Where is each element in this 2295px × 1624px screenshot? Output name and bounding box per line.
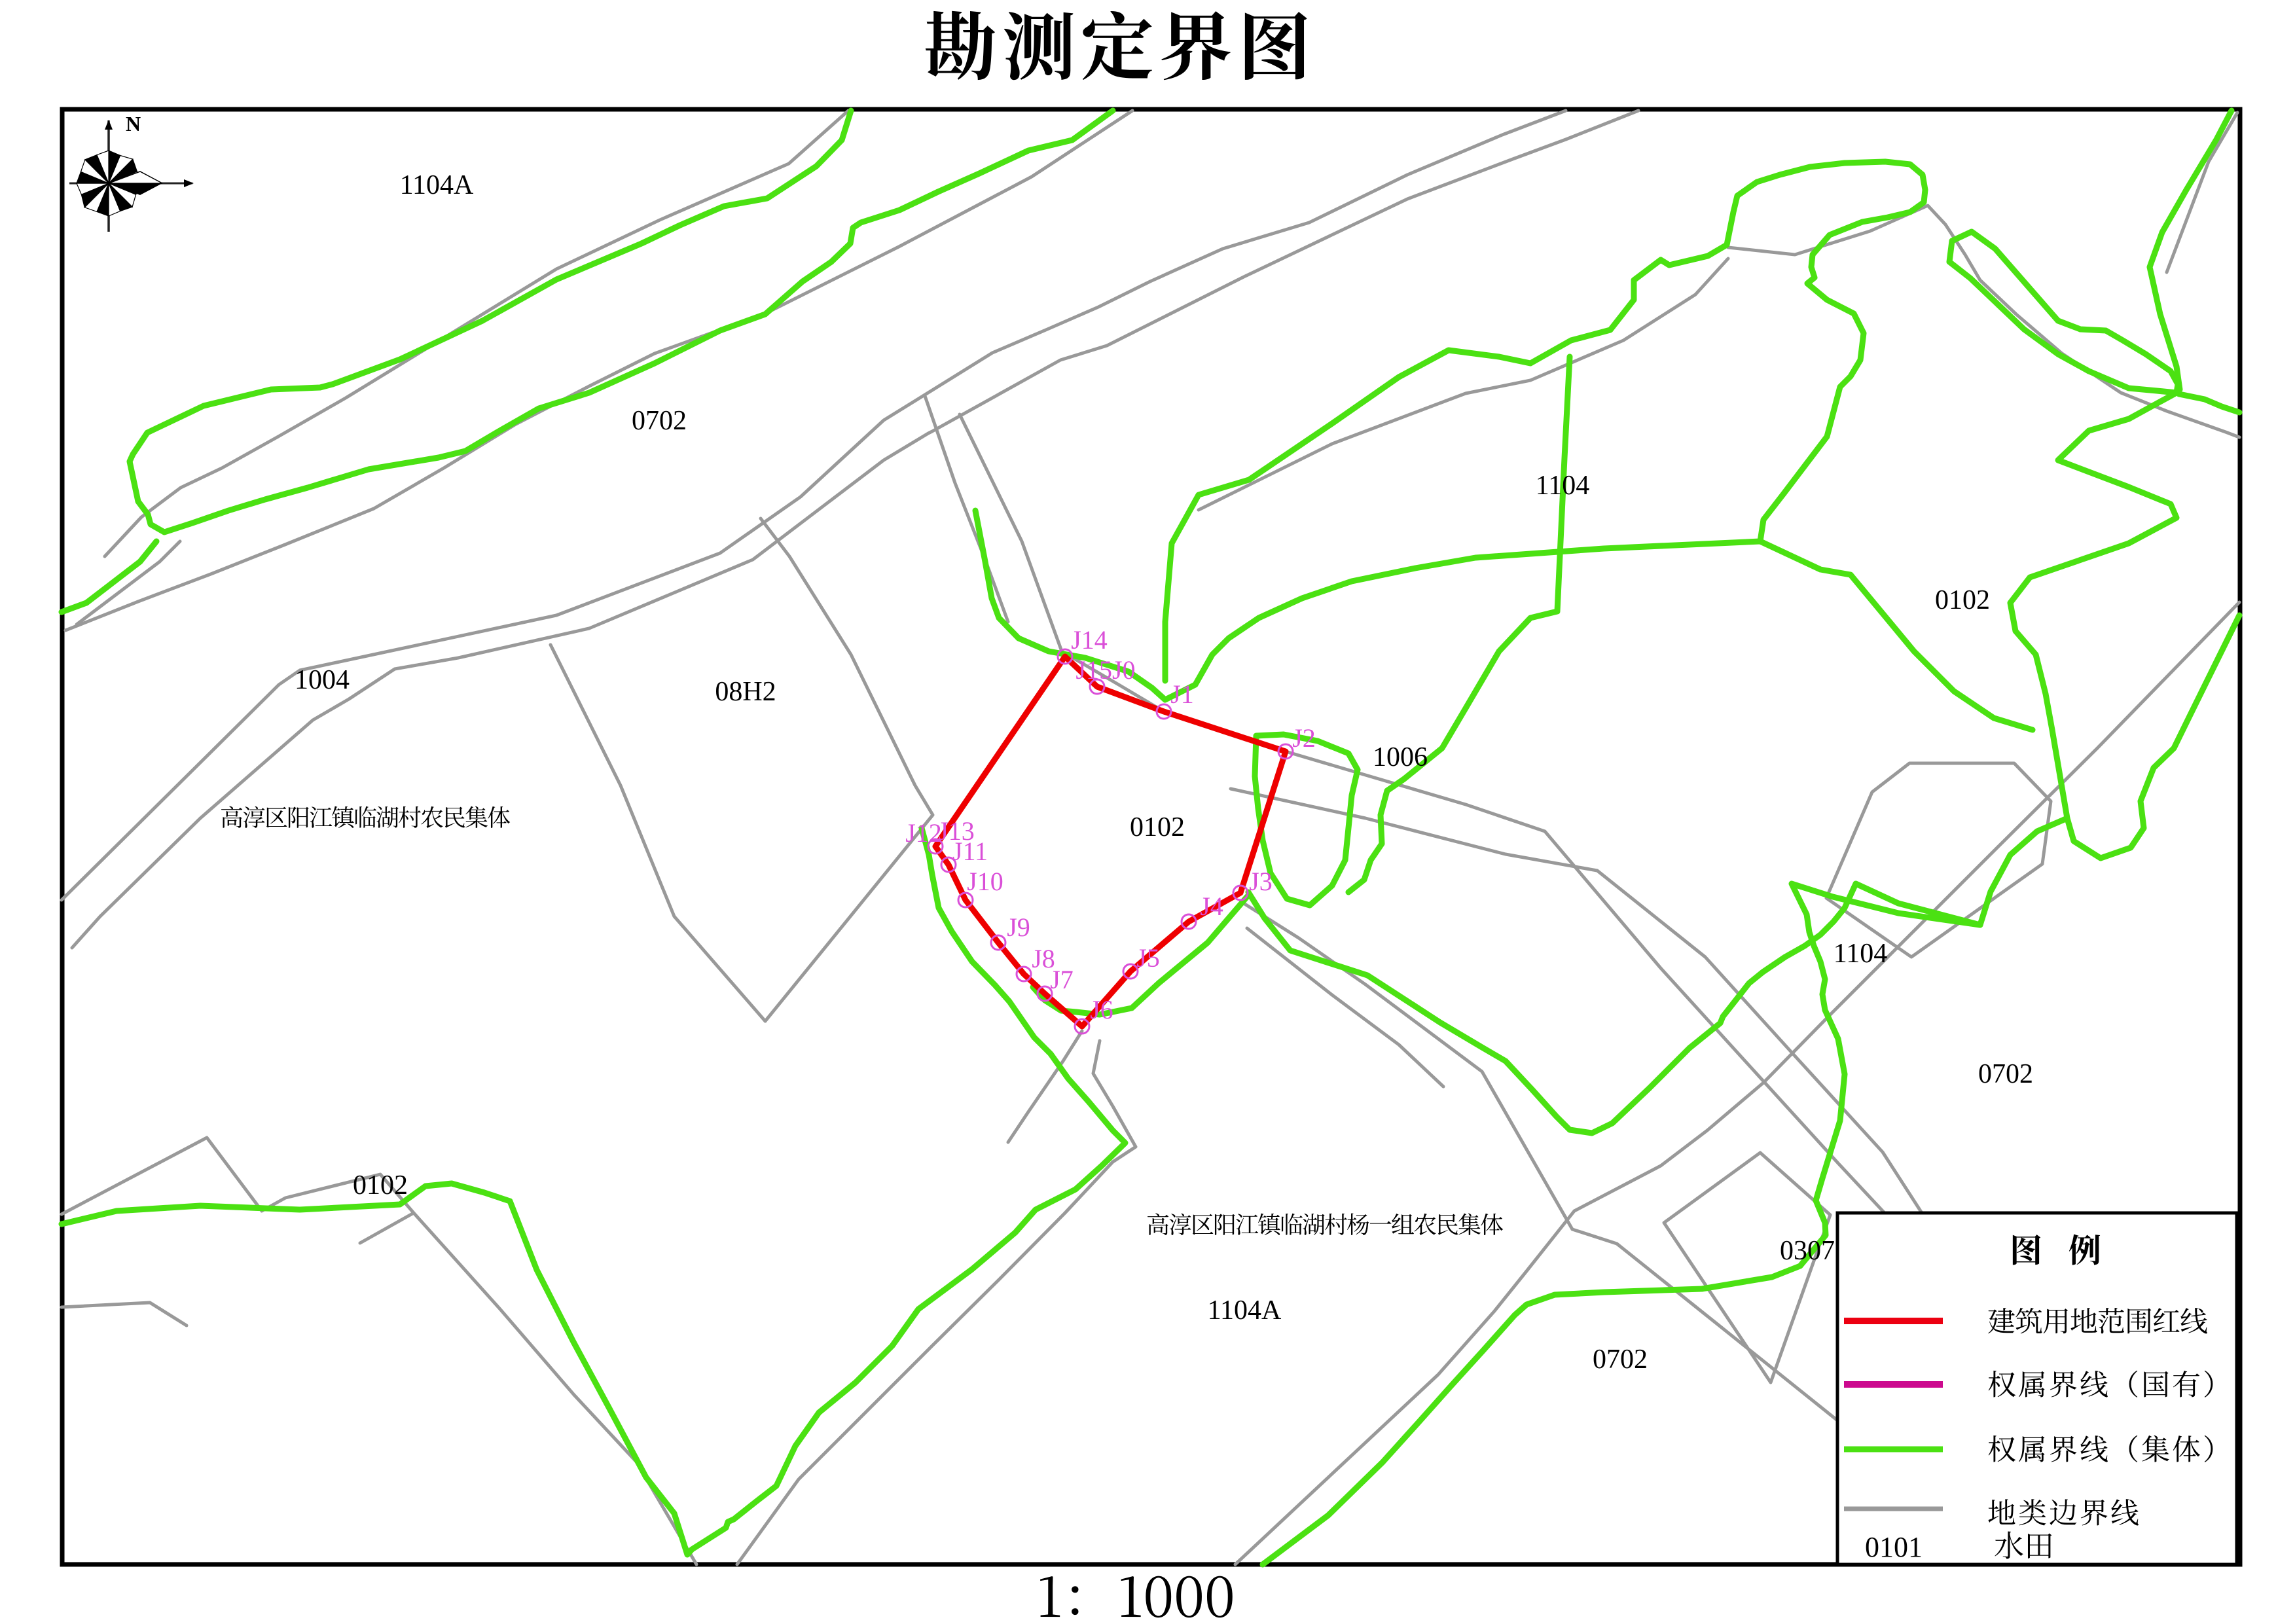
svg-text:0702: 0702 bbox=[1978, 1059, 2033, 1089]
svg-text:J8: J8 bbox=[1032, 944, 1055, 973]
svg-text:N: N bbox=[126, 112, 141, 135]
svg-text:J2: J2 bbox=[1292, 723, 1316, 753]
svg-text:0102: 0102 bbox=[1130, 812, 1185, 842]
svg-text:1104: 1104 bbox=[1536, 471, 1589, 501]
svg-text:1006: 1006 bbox=[1373, 742, 1428, 772]
svg-text:J14: J14 bbox=[1071, 625, 1108, 655]
svg-text:1004: 1004 bbox=[295, 665, 350, 695]
svg-text:0702: 0702 bbox=[632, 406, 687, 436]
svg-text:J15J0: J15J0 bbox=[1075, 655, 1135, 685]
svg-text:1104A: 1104A bbox=[1208, 1295, 1282, 1326]
svg-text:J12: J12 bbox=[905, 818, 942, 848]
svg-text:J6: J6 bbox=[1090, 995, 1113, 1024]
svg-text:08H2: 08H2 bbox=[715, 677, 776, 707]
svg-text:J3: J3 bbox=[1249, 867, 1273, 896]
svg-text:0102: 0102 bbox=[353, 1170, 408, 1200]
svg-text:J13: J13 bbox=[938, 816, 975, 846]
svg-text:0101: 0101 bbox=[1865, 1531, 1923, 1563]
svg-text:1104A: 1104A bbox=[400, 170, 474, 200]
svg-text:0102: 0102 bbox=[1935, 585, 1990, 615]
svg-text:1104: 1104 bbox=[1834, 939, 1887, 969]
svg-text:J5: J5 bbox=[1136, 943, 1160, 973]
svg-text:J1: J1 bbox=[1170, 679, 1194, 709]
svg-text:0307: 0307 bbox=[1780, 1236, 1835, 1266]
svg-text:J4: J4 bbox=[1200, 892, 1223, 921]
svg-text:J9: J9 bbox=[1007, 912, 1030, 942]
svg-text:0702: 0702 bbox=[1593, 1344, 1648, 1375]
svg-text:J10: J10 bbox=[967, 867, 1003, 896]
